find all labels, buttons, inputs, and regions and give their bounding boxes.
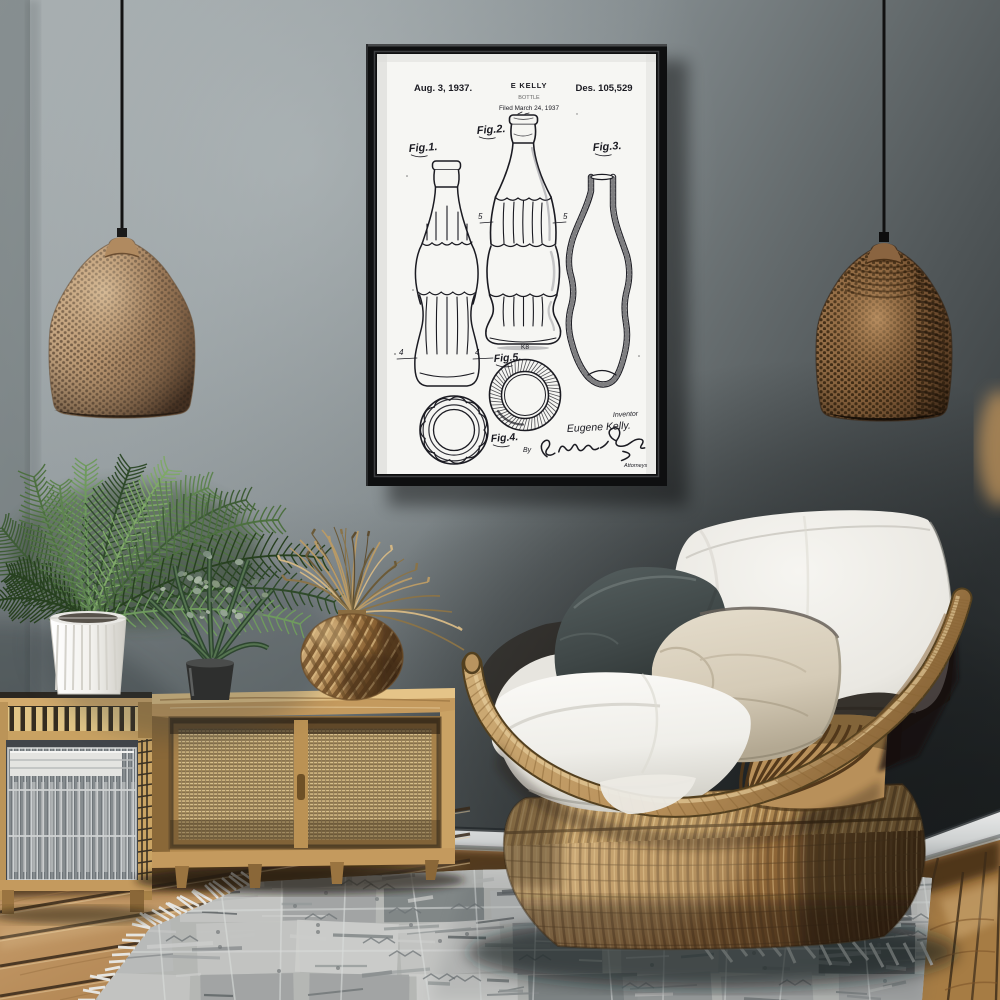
svg-text:4: 4 <box>399 348 404 357</box>
svg-text:4: 4 <box>475 348 480 357</box>
svg-text:BOTTLE: BOTTLE <box>518 95 540 101</box>
svg-text:By: By <box>523 447 532 454</box>
svg-text:Fig.5.: Fig.5. <box>493 351 521 365</box>
svg-text:Des. 105,529: Des. 105,529 <box>575 83 632 94</box>
svg-text:Fig.4.: Fig.4. <box>490 431 518 445</box>
svg-text:5: 5 <box>563 212 568 221</box>
svg-text:Aug. 3, 1937.: Aug. 3, 1937. <box>414 83 472 94</box>
svg-text:Fig.2.: Fig.2. <box>476 123 506 137</box>
svg-text:Filed March 24, 1937: Filed March 24, 1937 <box>499 105 559 112</box>
svg-text:E KELLY: E KELLY <box>511 81 548 90</box>
svg-text:K8: K8 <box>521 344 529 351</box>
svg-text:5: 5 <box>478 212 483 221</box>
svg-text:Inventor: Inventor <box>613 411 639 419</box>
svg-text:Fig.3.: Fig.3. <box>592 140 622 154</box>
svg-text:Fig.1.: Fig.1. <box>408 141 438 155</box>
svg-text:Attorneys: Attorneys <box>623 463 647 469</box>
